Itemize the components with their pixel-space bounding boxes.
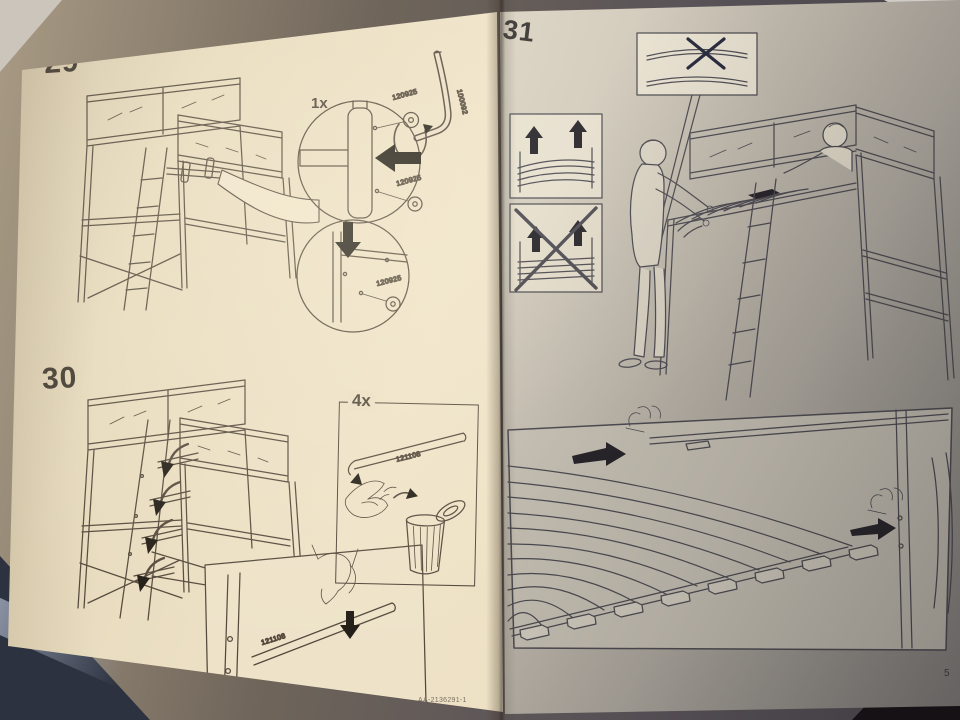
screw-part-number-top: 120925	[392, 89, 419, 102]
arrow-left-icon	[375, 144, 421, 172]
hand-icon	[345, 480, 388, 518]
step-31-main-illustration	[598, 75, 960, 417]
step-31-orientation-boxes	[508, 112, 606, 296]
article-number: AA-2136291-1	[418, 697, 467, 704]
page-number-right: 5	[944, 668, 950, 679]
step-29-callout: 1x 100092	[287, 48, 482, 343]
step-30-callout-box: 4x 121108	[335, 402, 479, 587]
allen-key-icon	[417, 52, 448, 138]
trash-can-icon	[378, 487, 468, 575]
screw-icon-top	[373, 113, 418, 130]
peel-sticker-illustration: 121108	[336, 403, 477, 585]
correct-slat-box	[510, 114, 602, 198]
person-behind-bed	[784, 123, 852, 173]
allen-key-part-number: 100092	[455, 89, 468, 116]
screw-icon-bottom	[359, 291, 400, 311]
photo-of-manual: 29	[0, 0, 960, 720]
screw-part-number-mid: 120925	[396, 175, 423, 188]
incorrect-slat-box	[510, 204, 602, 292]
strip-part-number: 121108	[395, 451, 421, 464]
arrow-down-icon	[335, 222, 361, 258]
step-29-bed-illustration	[30, 58, 320, 320]
bracket-detail	[300, 101, 372, 218]
step-31-slat-detail	[500, 398, 960, 670]
qty-1x-label: 1x	[311, 95, 328, 112]
peel-arrow-icon	[350, 473, 362, 485]
step-31-number: 31	[501, 14, 537, 49]
screw-part-number-bottom: 120925	[376, 275, 403, 288]
